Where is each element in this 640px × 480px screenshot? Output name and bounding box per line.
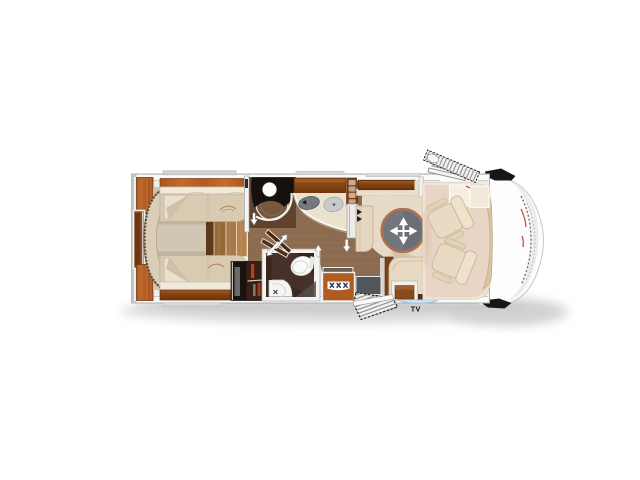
svg-text:TV: TV — [411, 304, 421, 313]
